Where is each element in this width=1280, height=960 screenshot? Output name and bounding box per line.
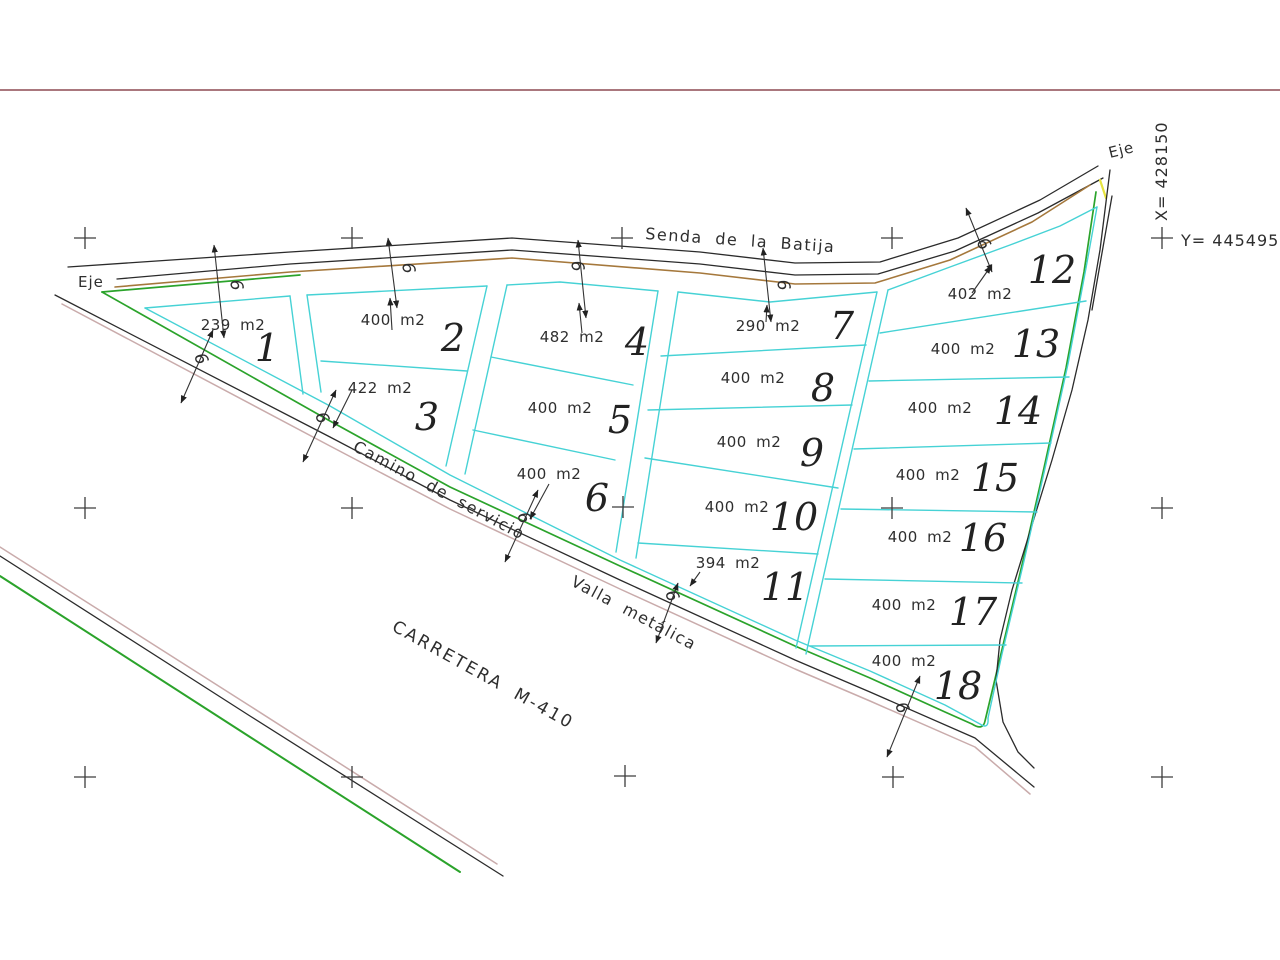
- grid-cross: [614, 765, 636, 787]
- plot-labels: 239 m2 1 400 m2 2 422 m2 3 482 m2 4 400 …: [201, 248, 1076, 708]
- divider-15-16: [841, 509, 1037, 512]
- dim-width-label: 6: [566, 259, 588, 273]
- grid-crosses: [74, 227, 1173, 788]
- plot-area-label: 290 m2: [736, 317, 801, 335]
- leader-arrow: [690, 572, 700, 586]
- corner-marker-line: [1100, 180, 1106, 198]
- grid-cross: [1151, 497, 1173, 519]
- plot-number: 7: [830, 304, 855, 348]
- divider-2-3: [321, 361, 467, 371]
- divider-4-5: [491, 357, 633, 385]
- highway-far-verge: [0, 576, 460, 872]
- plot-number: 13: [1012, 322, 1060, 366]
- grid-cross: [74, 227, 96, 249]
- plot-area-label: 400 m2: [721, 369, 786, 387]
- plot-number: 3: [415, 395, 439, 439]
- plot-area-label: 422 m2: [348, 379, 413, 397]
- plot-area-label: 400 m2: [888, 528, 953, 546]
- plot-number: 14: [994, 389, 1042, 433]
- plot-area-label: 394 m2: [696, 554, 761, 572]
- plot-area-label: 400 m2: [931, 340, 996, 358]
- block23-top-edge: [307, 286, 487, 295]
- block711-top-edge: [678, 292, 877, 302]
- plot-area-label: 400 m2: [908, 399, 973, 417]
- grid-cross: [74, 766, 96, 788]
- divider-14-15: [854, 443, 1051, 449]
- parcel-bottom-edge: [145, 308, 988, 726]
- plot-number: 2: [440, 316, 465, 360]
- strip-a-left: [290, 296, 303, 394]
- strip-b-left: [446, 286, 487, 466]
- grid-cross: [1151, 766, 1173, 788]
- plot-number: 4: [624, 320, 649, 364]
- grid-cross: [341, 497, 363, 519]
- plot-area-label: 400 m2: [705, 498, 770, 516]
- plot-number: 8: [811, 366, 835, 410]
- coordinate-y-label: Y= 4454950: [1180, 231, 1280, 250]
- camino-label: Camino de servicio: [350, 437, 528, 544]
- plot-area-label: 400 m2: [872, 652, 937, 670]
- plot-area-label: 402 m2: [948, 285, 1013, 303]
- senda-edge-bottom: [117, 178, 1103, 279]
- highway-far-shoulder: [0, 547, 497, 864]
- plot-area-label: 400 m2: [872, 596, 937, 614]
- dim-width-label: 6: [660, 587, 683, 605]
- plot-number: 12: [1028, 248, 1076, 292]
- boundary-right-inner: [1092, 196, 1112, 310]
- plot-area-label: 400 m2: [517, 465, 582, 483]
- plot-area-label: 400 m2: [896, 466, 961, 484]
- divider-10-11: [638, 543, 818, 554]
- plot-number: 1: [255, 326, 279, 370]
- grid-cross: [881, 497, 903, 519]
- plot-area-label: 482 m2: [540, 328, 605, 346]
- dim-width-label: 6: [397, 261, 419, 275]
- grid-cross: [882, 766, 904, 788]
- grid-cross: [341, 227, 363, 249]
- plot-number: 11: [761, 565, 809, 609]
- divider-17-18: [810, 645, 1006, 646]
- coordinate-x-label: X= 428150: [1152, 121, 1171, 221]
- fence-line: [102, 192, 1096, 727]
- carretera-label: CARRETERA M-410: [389, 617, 578, 734]
- plot-number: 9: [800, 431, 824, 475]
- senda-edge-top: [68, 166, 1098, 267]
- plot-number: 15: [971, 456, 1019, 500]
- plot1-top-edge: [145, 296, 290, 308]
- plot-area-label: 400 m2: [528, 399, 593, 417]
- plot-number: 10: [770, 495, 818, 539]
- divider-13-14: [869, 377, 1069, 381]
- senda-label: Senda de la Batija: [645, 224, 836, 256]
- plot-number: 18: [934, 664, 982, 708]
- strip-b-right: [465, 285, 507, 474]
- dim-line: [181, 330, 213, 403]
- strip-a-right: [307, 295, 321, 392]
- dim-width-label: 6: [189, 350, 212, 368]
- plot-number: 5: [608, 398, 632, 442]
- plot-area-label: 400 m2: [717, 433, 782, 451]
- site-plan-canvas: 6 6 6 6 6 6 6 6 6 6 Senda de la Batija C…: [0, 0, 1280, 960]
- grid-cross: [1151, 227, 1173, 249]
- eje-right-label: Eje: [1107, 138, 1136, 162]
- grid-cross: [74, 497, 96, 519]
- grid-cross: [881, 227, 903, 249]
- plot-number: 6: [585, 476, 609, 520]
- valla-label: Valla metálica: [568, 572, 700, 654]
- plot-area-label: 400 m2: [361, 311, 426, 329]
- divider-16-17: [825, 579, 1022, 583]
- highway-far-edge: [0, 556, 503, 876]
- dim-line: [388, 238, 397, 308]
- plot-number: 16: [959, 516, 1007, 560]
- senda-dirt-line: [115, 185, 1090, 287]
- dim-width-label: 6: [225, 278, 247, 292]
- dim-width-label: 6: [772, 278, 794, 292]
- divider-5-6: [473, 430, 615, 460]
- eje-left-label: Eje: [78, 273, 104, 291]
- highway-far-side: [0, 547, 503, 876]
- plot-number: 17: [949, 590, 998, 634]
- grid-cross: [612, 496, 634, 518]
